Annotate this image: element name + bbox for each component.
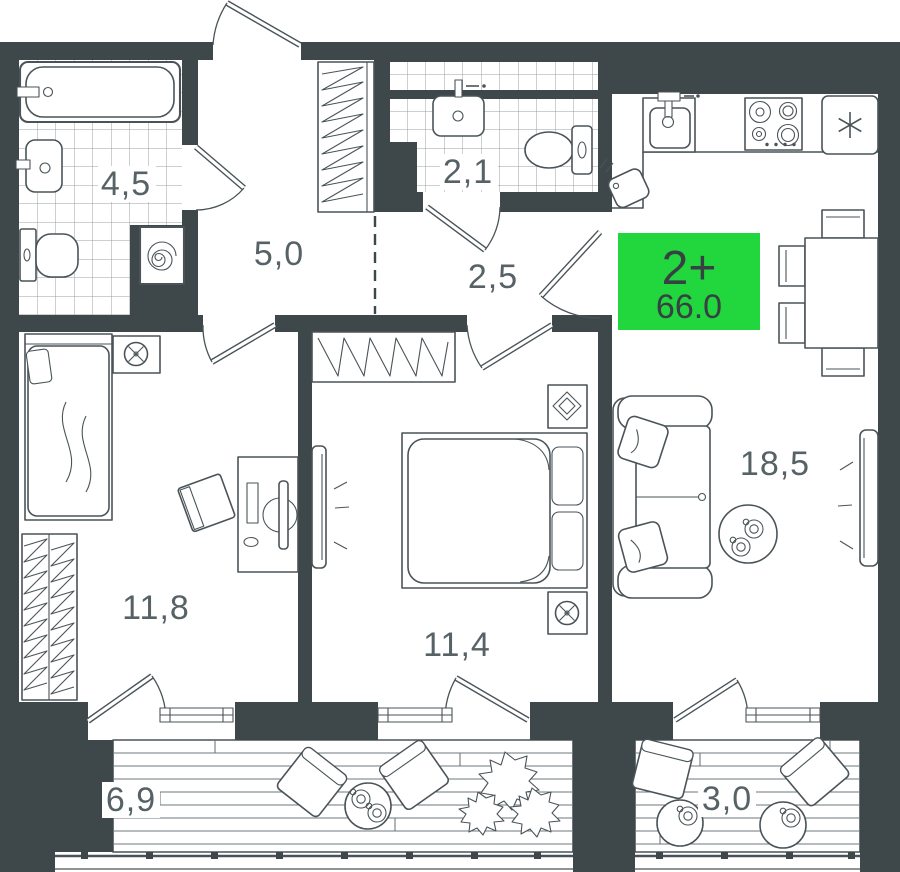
nightstand-icon	[548, 592, 587, 634]
apartment-badge: 2+ 66.0	[618, 233, 760, 330]
sofa-icon	[613, 396, 712, 598]
floor-plan: 4,5 5,0 2,1 2,5 11,8 11,4 18,5 6,9 3,0 2…	[0, 0, 900, 872]
balcony-table-icon	[760, 802, 806, 848]
kitchen-sink-icon	[643, 92, 700, 152]
bedroom-middle-window	[378, 708, 452, 722]
vent-fan-icon	[113, 336, 160, 373]
balcony-table-icon	[345, 783, 391, 829]
room-area-label-bedroom-left: 11,8	[122, 589, 190, 627]
pillow-icon	[552, 447, 583, 505]
room-area-label-balcony-left: 6,9	[106, 781, 156, 819]
room-area-label-living: 18,5	[740, 445, 810, 483]
double-bed-icon	[402, 433, 587, 588]
bedroom-middle-wardrobe-icon	[312, 332, 455, 382]
monitor-icon	[279, 481, 288, 549]
badge-area-value: 66.0	[656, 288, 722, 326]
single-bed-icon	[25, 334, 112, 520]
fridge-icon	[822, 96, 878, 154]
bedroom-left-window	[160, 708, 233, 722]
room-area-label-bathroom: 4,5	[101, 165, 151, 203]
nightstand-icon	[548, 385, 587, 428]
room-area-label-bedroom-middle: 11,4	[423, 626, 491, 664]
room-area-label-balcony-right: 3,0	[702, 780, 752, 818]
room-area-label-corridor: 2,5	[468, 258, 518, 296]
living-window	[746, 708, 820, 722]
bathtub-icon	[17, 62, 180, 122]
room-area-label-hallway: 5,0	[254, 235, 304, 273]
toilet-icon	[20, 229, 78, 281]
desk-icon	[238, 457, 298, 572]
coffee-table-icon	[719, 505, 777, 563]
stove-icon	[745, 98, 802, 150]
hallway-wardrobe-icon	[318, 62, 374, 212]
floor-plan-page: 4,5 5,0 2,1 2,5 11,8 11,4 18,5 6,9 3,0 2…	[0, 0, 900, 872]
balcony-table-icon	[657, 800, 703, 846]
bedroom-left-wardrobe-icon	[22, 534, 77, 700]
washing-machine-icon	[140, 227, 184, 284]
pillow-icon	[552, 512, 583, 570]
room-area-label-wc: 2,1	[443, 153, 493, 191]
